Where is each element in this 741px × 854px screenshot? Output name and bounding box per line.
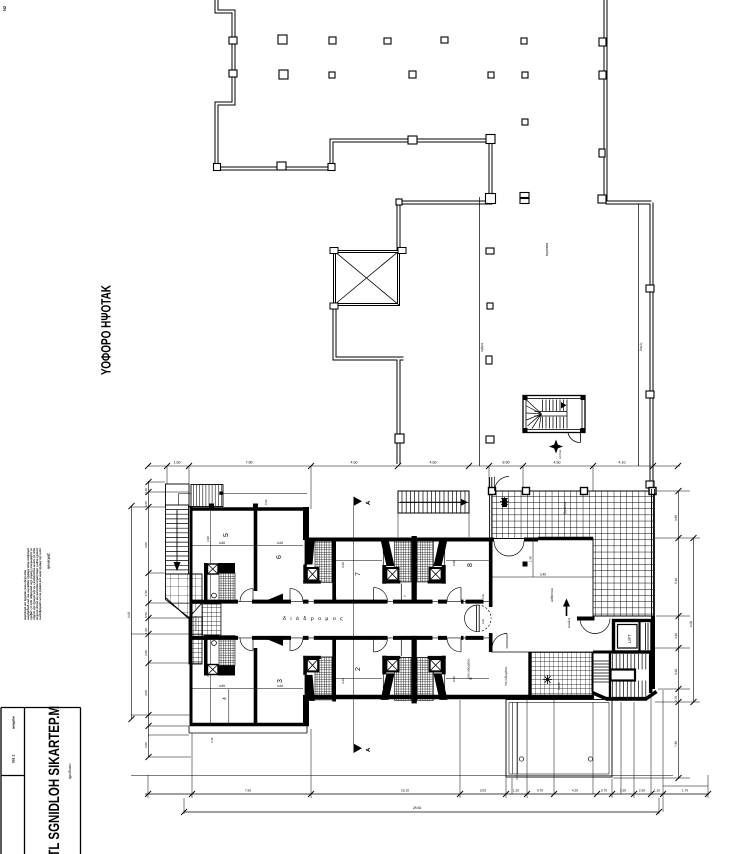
- svg-text:σχάρα: σχάρα: [480, 343, 484, 352]
- svg-text:ανελκ.: ανελκ.: [557, 681, 561, 690]
- svg-text:4.80: 4.80: [219, 541, 225, 545]
- svg-text:4.50: 4.50: [554, 461, 561, 465]
- svg-text:7.90: 7.90: [245, 789, 251, 793]
- svg-text:3.20: 3.20: [341, 678, 345, 684]
- svg-text:Υπνοδωμάτιο: Υπνοδωμάτιο: [504, 666, 508, 686]
- svg-text:ΑΝΤΛΙΑ: ΑΝΤΛΙΑ: [559, 450, 562, 459]
- svg-text:A: A: [365, 500, 372, 505]
- svg-text:Υπνοδωμάτιο: Υπνοδωμάτιο: [467, 658, 471, 678]
- svg-text:3.05: 3.05: [480, 789, 486, 793]
- svg-text:3.20: 3.20: [341, 562, 345, 568]
- svg-text:πλατύσκαλο: πλατύσκαλο: [194, 615, 198, 631]
- svg-text:0.90: 0.90: [264, 499, 268, 505]
- svg-text:υορέτσορπ υοτ ήγρατακ ςιεσώ ιδ: υορέτσορπ υοτ ήγρατακ ςιεσώ ιδεχσ ατακ: [23, 570, 27, 620]
- svg-text:0.90: 0.90: [452, 676, 456, 682]
- svg-text:ήμοδοκιο: ήμοδοκιο: [68, 764, 72, 780]
- svg-text:ακαμίλκ: ακαμίλκ: [12, 716, 16, 729]
- svg-text:4.60: 4.60: [277, 684, 283, 688]
- svg-text:1.20: 1.20: [513, 789, 519, 793]
- svg-text:1.00: 1.00: [144, 628, 148, 634]
- svg-text:7.65: 7.65: [674, 741, 678, 747]
- svg-text:καθιστικό: καθιστικό: [550, 588, 554, 602]
- svg-text:4.00: 4.00: [144, 542, 148, 548]
- svg-text:4.10: 4.10: [619, 461, 626, 465]
- svg-text:βεράντα: βεράντα: [563, 502, 567, 514]
- svg-text:4.50: 4.50: [351, 461, 358, 465]
- svg-text:3.00: 3.00: [144, 742, 148, 748]
- svg-text:0.90: 0.90: [482, 593, 485, 599]
- svg-text:8: 8: [467, 563, 474, 567]
- svg-text:9.05: 9.05: [127, 612, 131, 618]
- svg-text:4.80: 4.80: [219, 684, 225, 688]
- svg-text:2.90: 2.90: [639, 789, 645, 793]
- svg-text:4.50: 4.50: [144, 690, 148, 696]
- svg-text:Ν2: Ν2: [2, 5, 7, 11]
- svg-text:001:1: 001:1: [12, 754, 16, 763]
- svg-text:8.90: 8.90: [503, 461, 510, 465]
- svg-text:είσοδος: είσοδος: [567, 617, 571, 628]
- svg-text:DTL SGNIDLOH SIKARTEP.M: DTL SGNIDLOH SIKARTEP.M: [46, 706, 63, 854]
- svg-text:5.40: 5.40: [674, 578, 678, 584]
- svg-text:1.40: 1.40: [529, 556, 533, 562]
- svg-text:3: 3: [277, 679, 284, 683]
- svg-text:1.10: 1.10: [654, 789, 660, 793]
- svg-text:28.60: 28.60: [413, 806, 422, 810]
- svg-text:0.50: 0.50: [144, 612, 148, 618]
- svg-text:0.40: 0.40: [144, 488, 148, 494]
- svg-text:ταράτσα: ταράτσα: [545, 243, 549, 256]
- svg-text:3.90: 3.90: [206, 536, 210, 542]
- svg-text:2.70: 2.70: [674, 696, 678, 702]
- svg-text:LIFT: LIFT: [627, 634, 632, 643]
- svg-text:2: 2: [355, 667, 362, 671]
- svg-text:0.90: 0.90: [482, 618, 485, 624]
- svg-text:0.60: 0.60: [144, 501, 148, 507]
- svg-text:9.00: 9.00: [689, 621, 693, 627]
- svg-text:3.00: 3.00: [144, 650, 148, 656]
- svg-text:1.70: 1.70: [682, 789, 688, 793]
- svg-text:3.85: 3.85: [674, 515, 678, 521]
- svg-text:16.10: 16.10: [401, 789, 409, 793]
- svg-text:ησωίεμηΣ: ησωίεμηΣ: [47, 553, 51, 569]
- svg-text:1.50: 1.50: [144, 590, 148, 596]
- svg-text:4.60: 4.60: [277, 541, 283, 545]
- svg-text:1.50: 1.50: [174, 461, 181, 465]
- svg-text:4: 4: [222, 697, 228, 700]
- svg-text:δ ι ά δ ρ ο μ ο ς: δ ι ά δ ρ ο μ ο ς: [283, 616, 344, 622]
- svg-text:A: A: [365, 747, 372, 752]
- svg-text:δοκός: δοκός: [639, 342, 643, 351]
- svg-text:5.40: 5.40: [540, 573, 546, 577]
- svg-text:5: 5: [223, 533, 230, 537]
- svg-text:7.90: 7.90: [246, 461, 253, 465]
- svg-text:0.90: 0.90: [452, 560, 456, 566]
- svg-text:7: 7: [355, 572, 362, 576]
- svg-text:6: 6: [276, 555, 283, 559]
- svg-text:0.70: 0.70: [537, 789, 543, 793]
- svg-text:2.30: 2.30: [210, 737, 214, 743]
- svg-text:ΥΟΦΟΡΟ ΗΨΟΤΑΚ: ΥΟΦΟΡΟ ΗΨΟΤΑΚ: [99, 285, 114, 375]
- svg-text:0.70: 0.70: [601, 789, 607, 793]
- svg-text:4.50: 4.50: [430, 461, 437, 465]
- svg-text:3.20: 3.20: [674, 669, 678, 675]
- svg-text:4.20: 4.20: [572, 789, 578, 793]
- svg-text:3.40: 3.40: [674, 633, 678, 639]
